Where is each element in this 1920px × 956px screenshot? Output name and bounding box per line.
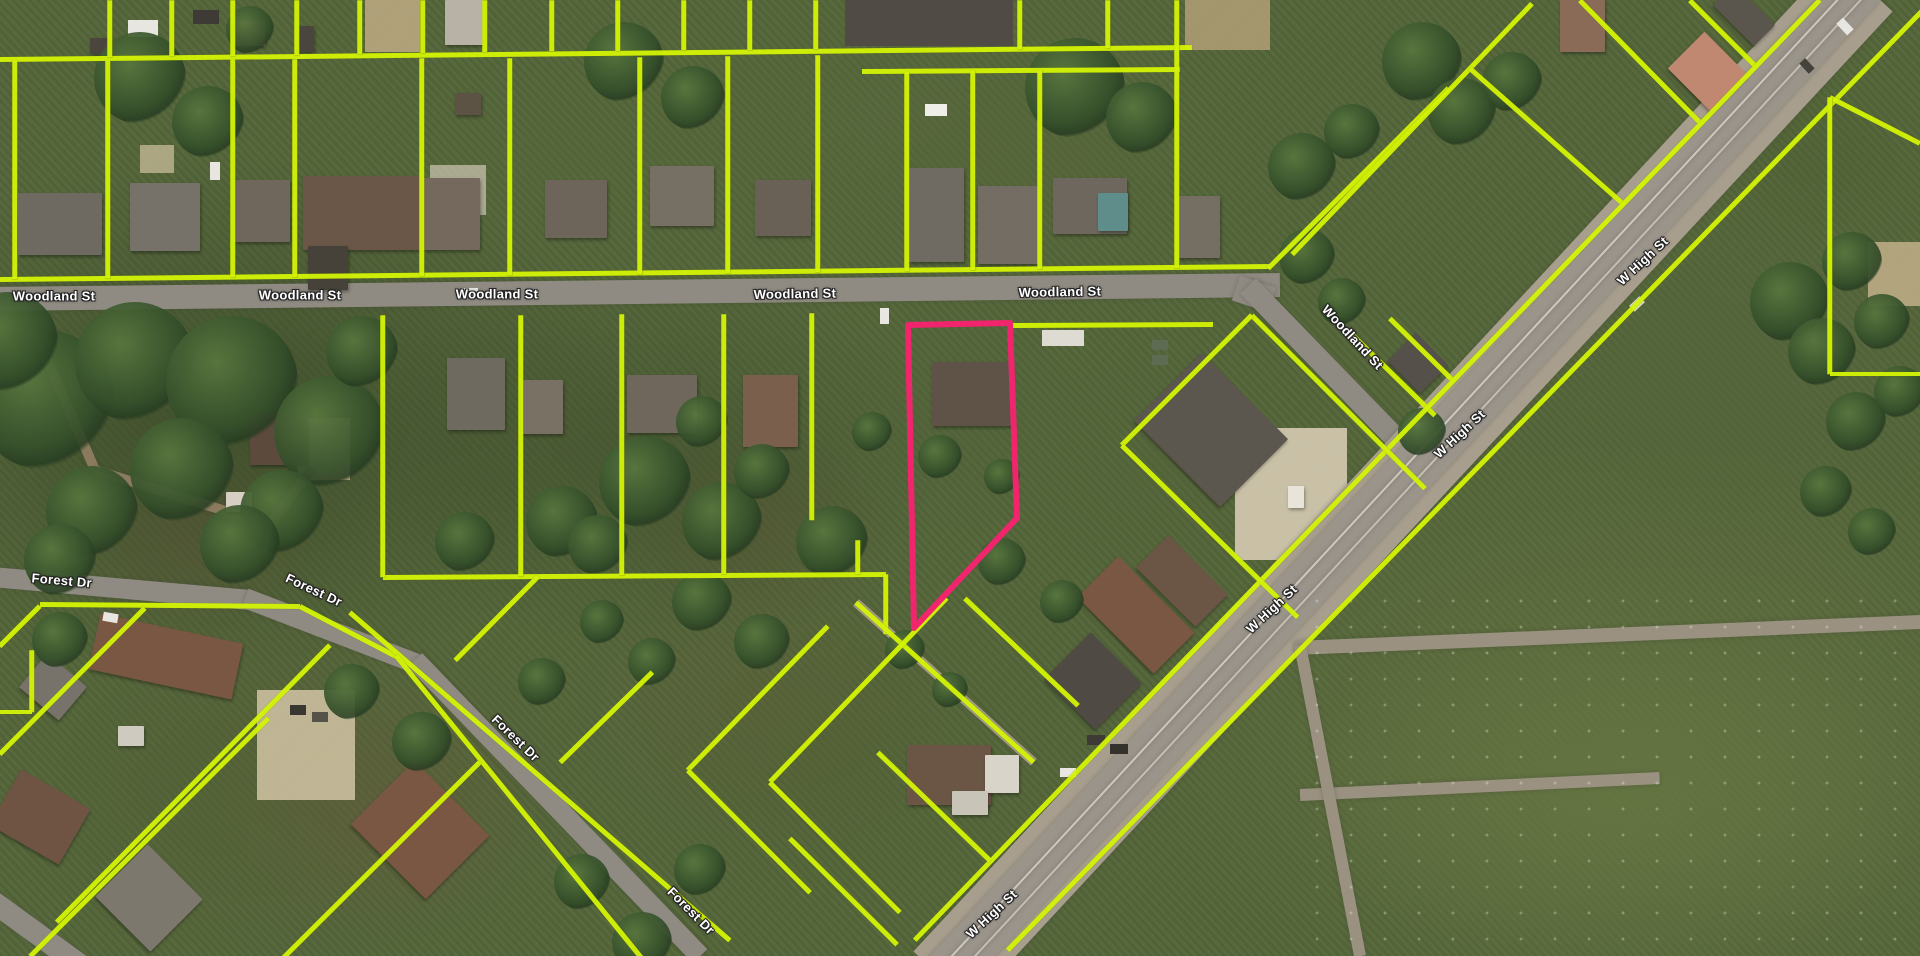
building-roof: [298, 26, 314, 52]
parcel-boundary-line: [638, 57, 643, 274]
parcel-boundary-line: [550, 0, 555, 51]
tree-canopy: [734, 614, 790, 670]
tree-canopy: [599, 436, 691, 528]
tree-canopy: [200, 505, 280, 585]
building-roof: [1178, 196, 1220, 258]
building-roof: [521, 380, 563, 434]
building-roof: [755, 180, 811, 236]
parcel-boundary-line: [856, 540, 861, 574]
vehicle: [210, 162, 220, 180]
tree-canopy: [324, 664, 380, 720]
parcel-boundary-line: [295, 0, 300, 55]
building-roof: [952, 791, 988, 815]
building-roof: [232, 180, 290, 242]
street-name-label: Woodland St: [456, 287, 539, 302]
building-roof: [908, 168, 964, 262]
street-name-label: Woodland St: [259, 288, 342, 303]
parcel-boundary-line: [358, 0, 363, 54]
parcel-boundary-line: [170, 0, 175, 56]
tree-canopy: [584, 22, 664, 102]
parcel-boundary-line: [483, 0, 488, 52]
parcel-boundary-line: [1828, 97, 1833, 374]
tree-canopy: [918, 435, 962, 479]
vehicle: [312, 712, 328, 722]
tree-canopy: [674, 844, 726, 896]
tree-canopy: [628, 638, 676, 686]
building-roof: [447, 358, 505, 430]
building-roof: [303, 176, 421, 250]
street-name-label: Woodland St: [1019, 284, 1102, 300]
parcel-boundary-line: [816, 55, 821, 272]
vehicle: [880, 308, 889, 324]
building-roof: [424, 178, 480, 250]
building-roof: [455, 93, 481, 115]
parcel-boundary-line: [231, 59, 236, 277]
building-roof: [743, 375, 798, 447]
tree-canopy: [1040, 580, 1084, 624]
tree-canopy: [518, 658, 566, 706]
parcel-boundary-line: [748, 0, 753, 50]
tree-canopy: [1324, 104, 1380, 160]
tree-canopy: [734, 444, 790, 500]
parcel-boundary-line: [1012, 322, 1213, 327]
driveway-pad: [365, 0, 420, 52]
parcel-boundary-line: [616, 0, 621, 51]
street-name-label: Woodland St: [754, 286, 837, 302]
vehicle: [1152, 340, 1168, 350]
parcel-boundary-line: [0, 710, 32, 715]
tree-canopy: [672, 572, 732, 632]
parcel-boundary-line: [381, 315, 386, 577]
building-roof: [1560, 0, 1605, 52]
parcel-boundary-line: [722, 314, 727, 574]
street-name-label: Woodland St: [13, 289, 96, 304]
vehicle: [925, 104, 947, 116]
parcel-boundary-line: [508, 58, 513, 275]
building-roof: [18, 193, 102, 255]
tree-canopy: [32, 612, 88, 668]
tree-canopy: [1848, 508, 1896, 556]
driveway-pad: [845, 0, 1013, 46]
building-roof: [985, 755, 1019, 793]
parcel-boundary-line: [293, 59, 298, 277]
parcel-boundary-line: [1038, 70, 1043, 269]
tree-canopy: [130, 418, 234, 522]
building-roof: [130, 183, 200, 251]
vehicle: [1110, 744, 1128, 754]
parcel-boundary-line: [13, 60, 18, 279]
parcel-boundary-line: [106, 60, 111, 278]
driveway-pad: [1185, 0, 1270, 50]
vehicle: [1042, 330, 1084, 346]
parcel-boundary-line: [30, 650, 35, 712]
parcel-boundary-line: [108, 0, 113, 57]
building-roof: [1098, 193, 1128, 231]
parcel-boundary-line: [231, 0, 236, 56]
tree-canopy: [435, 512, 495, 572]
parcel-boundary-line: [1106, 0, 1111, 48]
tree-canopy: [1854, 294, 1910, 350]
tree-canopy: [1106, 82, 1178, 154]
parcel-boundary-line: [620, 314, 625, 575]
parcel-boundary-line: [1018, 0, 1023, 49]
building-roof: [978, 186, 1040, 264]
parcel-boundary-line: [519, 315, 524, 576]
driveway-pad: [140, 145, 174, 173]
tree-canopy: [392, 712, 452, 772]
building-roof: [308, 246, 348, 290]
tree-canopy: [978, 538, 1026, 586]
vehicle: [290, 705, 306, 715]
tree-canopy: [326, 316, 398, 388]
parcel-boundary-line: [421, 0, 426, 53]
building-roof: [1288, 486, 1304, 508]
parcel-boundary-line: [726, 56, 731, 273]
building-roof: [118, 726, 144, 746]
parcel-boundary-line: [814, 0, 819, 49]
building-roof: [650, 166, 714, 226]
aerial-map-canvas[interactable]: Woodland StWoodland StWoodland StWoodlan…: [0, 0, 1920, 956]
building-roof: [445, 0, 483, 45]
tree-canopy: [1800, 466, 1852, 518]
parcel-boundary-line: [1830, 372, 1920, 377]
tree-canopy: [661, 66, 725, 130]
parcel-boundary-line: [1175, 0, 1180, 268]
parcel-boundary-line: [971, 70, 976, 270]
parcel-boundary-line: [420, 58, 425, 276]
tree-canopy: [852, 412, 892, 452]
parcel-boundary-line: [905, 71, 910, 271]
parcel-boundary-line: [810, 313, 815, 520]
vehicle: [1152, 355, 1168, 365]
parcel-boundary-line: [682, 0, 687, 50]
tree-canopy: [676, 396, 728, 448]
tree-canopy: [580, 600, 624, 644]
vehicle: [193, 10, 219, 24]
building-roof: [545, 180, 607, 238]
building-roof: [932, 362, 1012, 426]
